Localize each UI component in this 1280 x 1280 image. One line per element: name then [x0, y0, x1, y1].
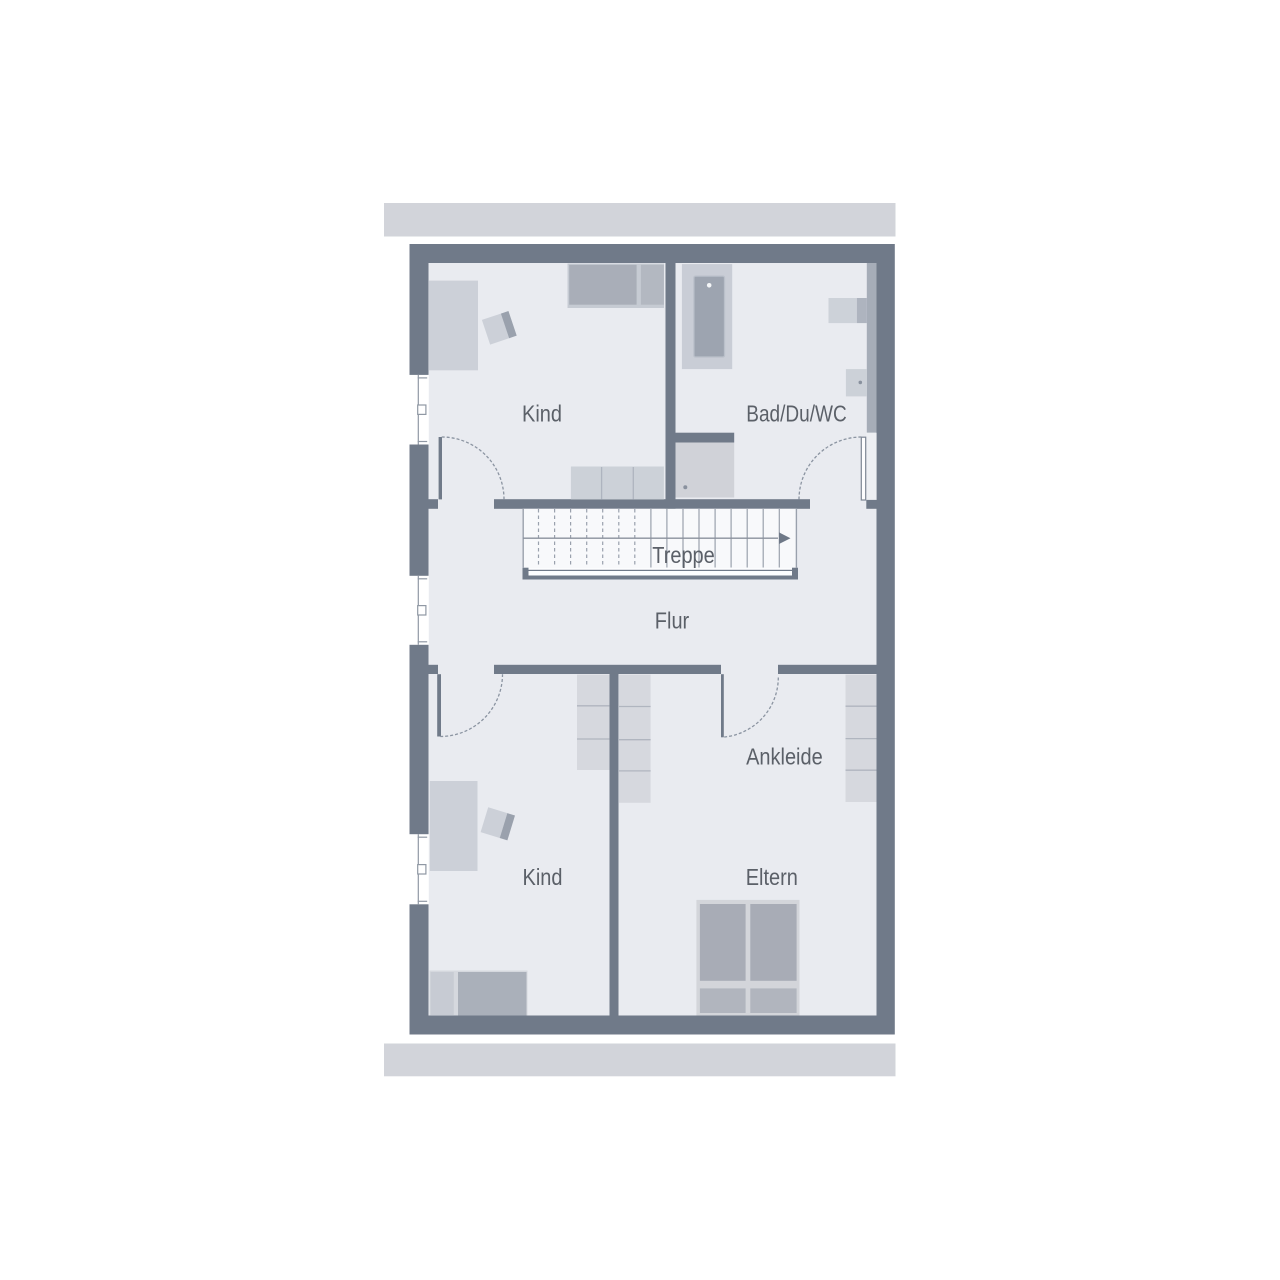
- svg-text:Ankleide: Ankleide: [746, 743, 823, 770]
- svg-text:Kind: Kind: [523, 864, 563, 891]
- svg-text:Flur: Flur: [655, 607, 689, 634]
- svg-text:Eltern: Eltern: [746, 864, 798, 891]
- svg-text:Kind: Kind: [522, 400, 562, 427]
- svg-text:Bad/Du/WC: Bad/Du/WC: [746, 400, 846, 426]
- svg-text:Treppe: Treppe: [652, 541, 715, 568]
